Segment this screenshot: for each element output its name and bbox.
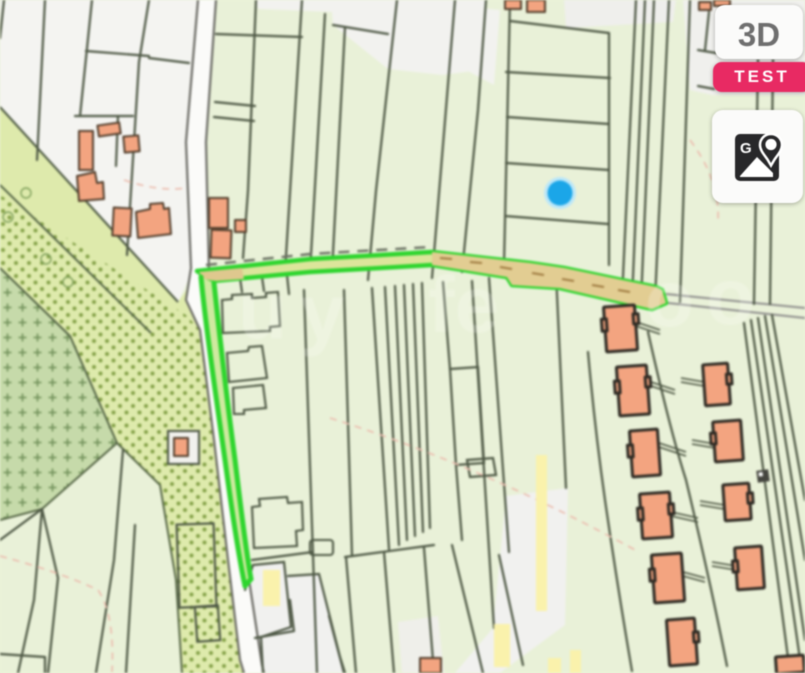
svg-text:G: G <box>740 140 752 157</box>
